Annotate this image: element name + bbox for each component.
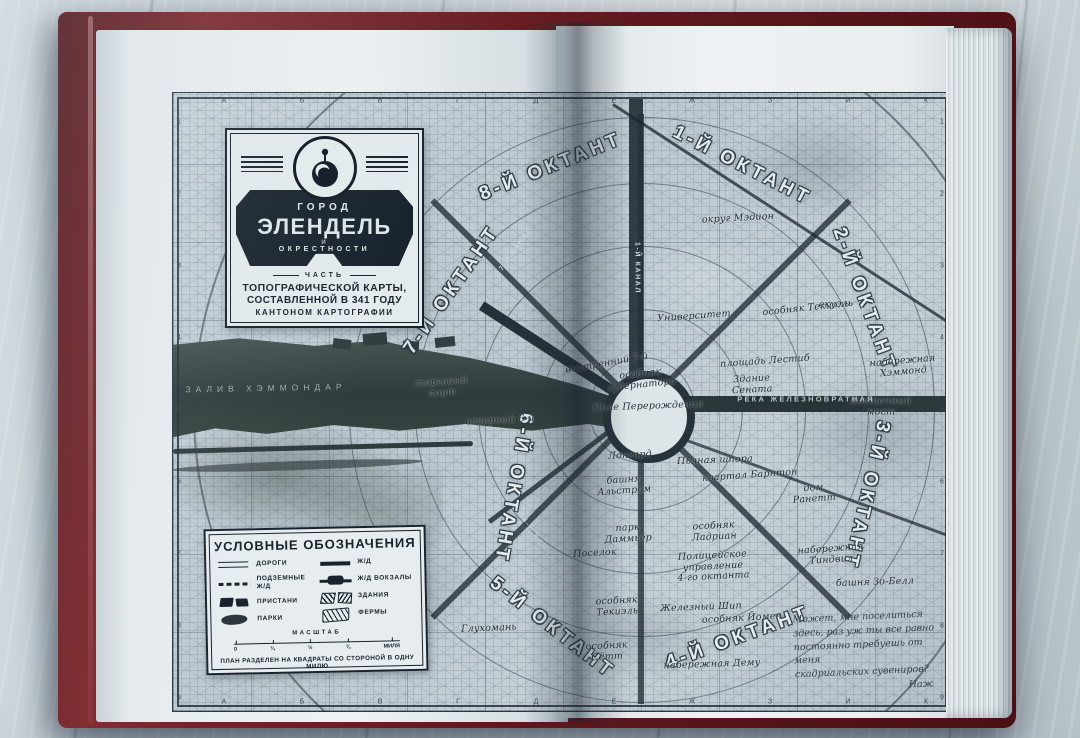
photo-of-open-book: ААББВВГГДДЕЕЖЖЗЗИИКК112233445566778899 1… — [0, 0, 1080, 738]
elendel-crest-icon — [293, 136, 357, 200]
photo-vignette — [0, 0, 1080, 738]
